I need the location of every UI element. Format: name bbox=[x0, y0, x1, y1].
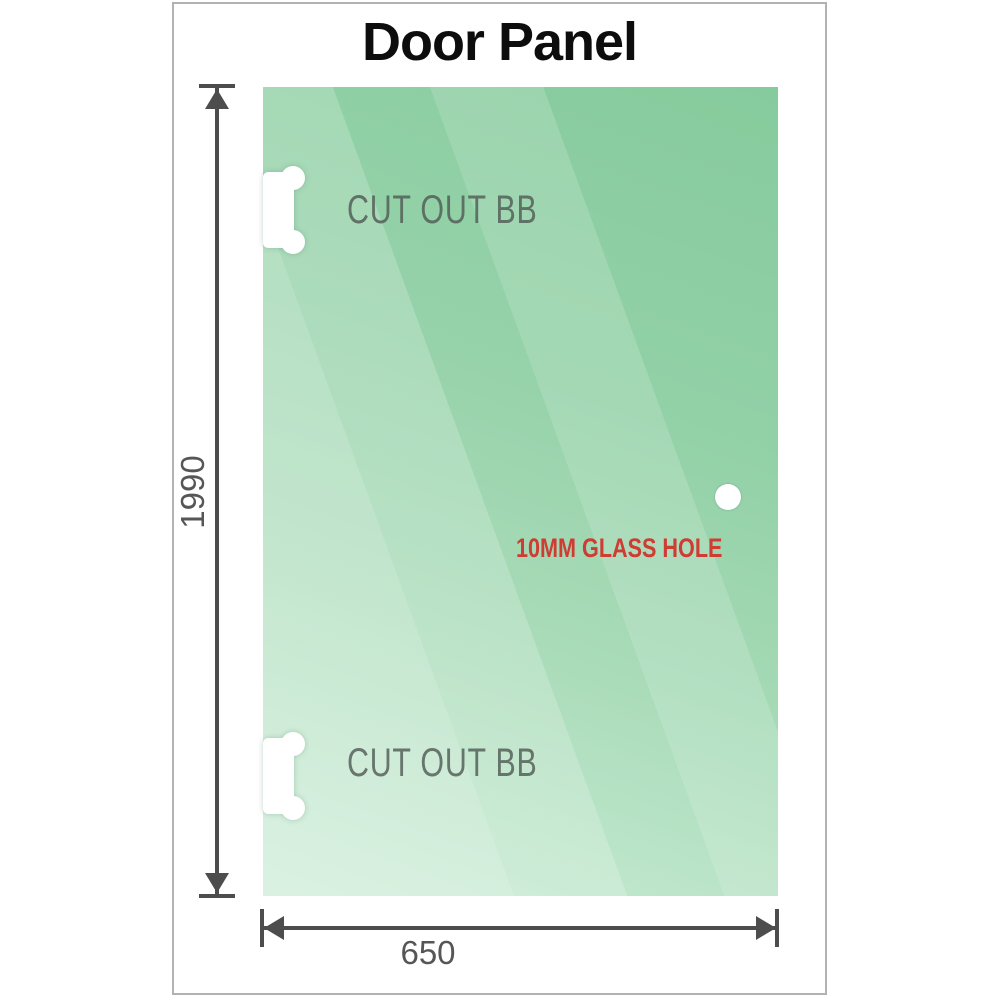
hinge-cutout-bottom-icon bbox=[263, 731, 307, 821]
glass-hole-label: 10MM GLASS HOLE bbox=[516, 535, 722, 562]
dim-height-cap-bottom bbox=[199, 894, 235, 898]
hinge-cutout-top-icon bbox=[263, 165, 307, 255]
dim-width-line bbox=[263, 926, 777, 930]
arrow-left-icon bbox=[264, 916, 284, 940]
arrow-down-icon bbox=[205, 873, 229, 893]
arrow-up-icon bbox=[205, 89, 229, 109]
door-panel-diagram: Door Panel CUT OUT BB CUT OUT BB 10MM GL… bbox=[0, 0, 1000, 1000]
cutout-label-bottom: CUT OUT BB bbox=[347, 742, 538, 784]
dim-height-line bbox=[215, 88, 219, 894]
height-dimension-label: 1990 bbox=[176, 447, 210, 537]
page-title: Door Panel bbox=[172, 12, 827, 72]
cutout-label-top: CUT OUT BB bbox=[347, 189, 538, 231]
arrow-right-icon bbox=[756, 916, 776, 940]
width-dimension-label: 650 bbox=[368, 936, 488, 970]
glass-hole-icon bbox=[715, 484, 741, 510]
